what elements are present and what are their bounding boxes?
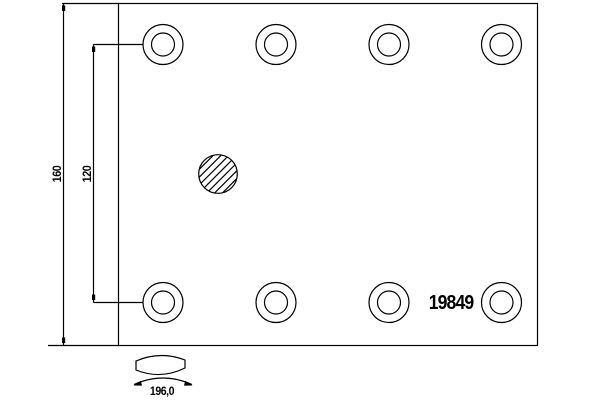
rivet-hole-circle xyxy=(256,25,296,65)
center-hole-hatched xyxy=(195,127,242,220)
dimension-label-160: 160 xyxy=(51,161,63,188)
curved-lining-band xyxy=(136,355,185,374)
arc-length-label: 196,0 xyxy=(139,384,185,398)
rivet-hole-circle xyxy=(265,33,288,56)
rivet-hole-circle xyxy=(490,33,513,56)
hatch-lines xyxy=(195,127,242,220)
rivet-hole-circle xyxy=(369,283,409,323)
part-number-label: 19849 xyxy=(425,294,478,312)
dimension-label-120: 120 xyxy=(81,161,93,188)
rivet-hole-circle xyxy=(152,291,175,314)
rivet-hole-circle xyxy=(152,33,175,56)
rivet-hole-circle xyxy=(378,33,401,56)
dimension-160-tick-bottom xyxy=(62,338,65,344)
rivet-hole-circle xyxy=(482,283,522,323)
rivet-hole-circle xyxy=(265,291,288,314)
rivet-hole-circle xyxy=(378,291,401,314)
dimension-120 xyxy=(92,45,143,303)
rivet-hole-circle xyxy=(256,283,296,323)
rivet-holes xyxy=(143,25,522,323)
rivet-hole-circle xyxy=(143,283,183,323)
arc-arrow-right xyxy=(184,381,193,386)
dimension-160-tick-top xyxy=(62,6,65,12)
drawing-canvas xyxy=(0,0,600,400)
rivet-hole-circle xyxy=(369,25,409,65)
dimension-120-tick-top xyxy=(92,47,95,53)
rivet-hole-circle xyxy=(482,25,522,65)
rivet-hole-circle xyxy=(490,291,513,314)
technical-drawing: 160 120 19849 196,0 xyxy=(0,0,600,400)
curvature-symbol xyxy=(134,355,193,385)
rivet-hole-circle xyxy=(143,25,183,65)
dimension-120-tick-bottom xyxy=(92,295,95,301)
